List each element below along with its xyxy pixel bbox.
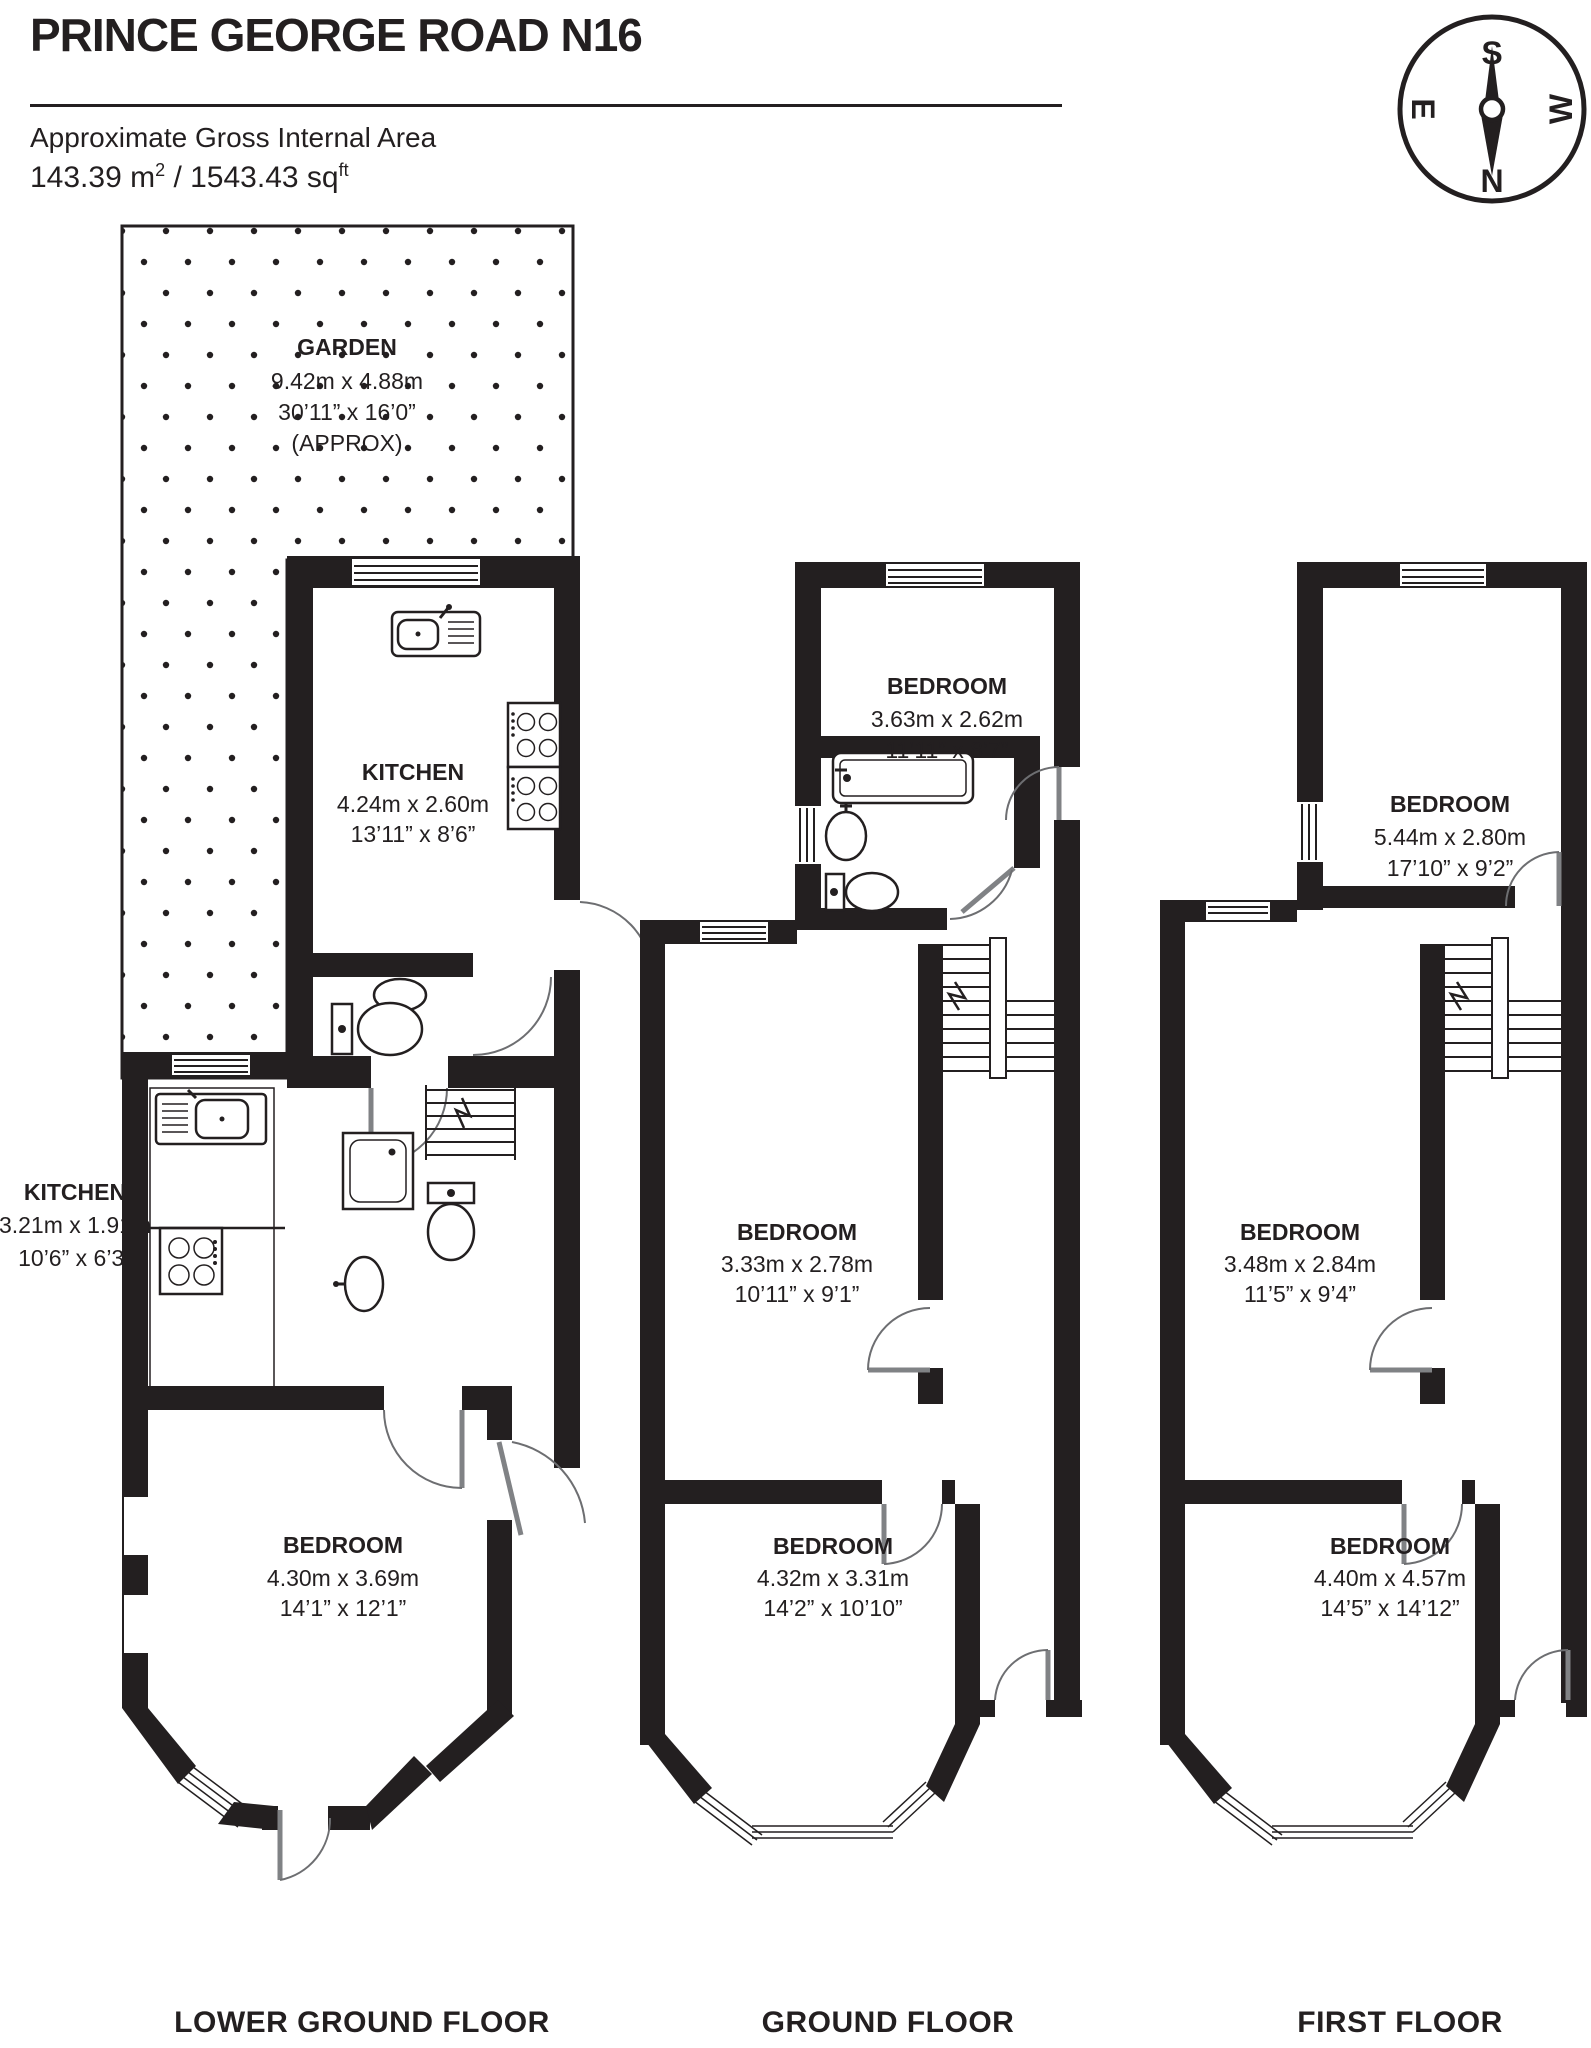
room-metric: 3.63m x 2.62m bbox=[871, 706, 1023, 732]
caption-lower-ground-floor: LOWER GROUND FLOOR bbox=[162, 2006, 562, 2040]
area-imperial: 1543.43 sq bbox=[190, 161, 338, 194]
room-name: BEDROOM bbox=[1390, 791, 1510, 817]
left-window bbox=[700, 922, 768, 942]
garden-name: GARDEN bbox=[297, 334, 397, 360]
gross-internal-area: 143.39 m2 / 1543.43 sqft bbox=[30, 160, 349, 195]
left-window bbox=[1206, 902, 1270, 920]
area-metric: 143.39 m bbox=[30, 161, 155, 194]
floorplan-ground: BEDROOM 3.63m x 2.62m 11’11” x 8’7” BEDR… bbox=[630, 540, 1110, 2010]
bay-window bbox=[122, 1700, 514, 1830]
wc2-toilet bbox=[428, 1183, 474, 1260]
kitchen-hob bbox=[508, 703, 560, 829]
wc2-basin bbox=[333, 1257, 383, 1311]
room-metric: 5.44m x 2.80m bbox=[1374, 824, 1526, 850]
compass-west: W bbox=[1543, 93, 1579, 124]
entrance-door bbox=[995, 1650, 1048, 1700]
middle-bedroom-door bbox=[1370, 1308, 1432, 1370]
bathroom-window bbox=[795, 806, 821, 864]
top-window bbox=[1400, 564, 1486, 586]
toilet bbox=[826, 873, 898, 911]
garden-note: (APPROX) bbox=[291, 430, 402, 456]
kitchen-window bbox=[352, 559, 480, 585]
front-wall-under-garden bbox=[122, 1052, 287, 1078]
bedroom-bottom-label: BEDROOM 4.40m x 4.57m 14’5” x 14’12” bbox=[1314, 1533, 1466, 1621]
room-metric: 4.40m x 4.57m bbox=[1314, 1565, 1466, 1591]
bedroom-imperial: 14’1” x 12’1” bbox=[280, 1595, 407, 1621]
room-imperial: 11’11” x 8’7” bbox=[885, 737, 1008, 763]
room-imperial: 11’5” x 9’4” bbox=[1244, 1281, 1356, 1307]
room-name: BEDROOM bbox=[737, 1219, 857, 1245]
garden-imperial: 30’11” x 16’0” bbox=[278, 399, 416, 425]
room-metric: 3.48m x 2.84m bbox=[1224, 1251, 1376, 1277]
kitchen-metric: 4.24m x 2.60m bbox=[337, 791, 489, 817]
area-separator: / bbox=[165, 161, 190, 194]
caption-ground-floor: GROUND FLOOR bbox=[688, 2006, 1088, 2040]
bedroom-name: BEDROOM bbox=[283, 1532, 403, 1558]
compass-rose: S N E W bbox=[1392, 6, 1591, 206]
wc-walls bbox=[313, 953, 473, 977]
small-kitchen-name: KITCHEN bbox=[24, 1179, 126, 1205]
floorplan-lower-ground: GARDEN 9.42m x 4.88m 30’11” x 16’0” (APP… bbox=[0, 220, 660, 2010]
room-name: BEDROOM bbox=[1240, 1219, 1360, 1245]
bedroom-metric: 4.30m x 3.69m bbox=[267, 1565, 419, 1591]
bedroom-top-label: BEDROOM 5.44m x 2.80m 17’10” x 9’2” bbox=[1374, 791, 1526, 881]
bedroom-middle-label: BEDROOM 3.48m x 2.84m 11’5” x 9’4” bbox=[1224, 1219, 1376, 1307]
bedroom-top-label: BEDROOM 3.63m x 2.62m 11’11” x 8’7” bbox=[871, 673, 1023, 763]
kitchen-label: KITCHEN 4.24m x 2.60m 13’11” x 8’6” bbox=[337, 759, 489, 847]
room-metric: 4.32m x 3.31m bbox=[757, 1565, 909, 1591]
compass-east: E bbox=[1405, 98, 1441, 119]
area-imperial-sup: ft bbox=[339, 160, 349, 180]
top-window bbox=[886, 564, 984, 586]
subtitle: Approximate Gross Internal Area bbox=[30, 122, 436, 154]
wc-toilet bbox=[332, 1003, 422, 1055]
wc-door-arc bbox=[473, 977, 551, 1055]
basin bbox=[826, 804, 866, 860]
kitchen-imperial: 13’11” x 8’6” bbox=[351, 821, 476, 847]
bedroom-bottom-label: BEDROOM 4.32m x 3.31m 14’2” x 10’10” bbox=[757, 1533, 909, 1621]
kitchen-sink bbox=[392, 604, 480, 656]
stairs bbox=[1437, 938, 1582, 1078]
room-imperial: 14’5” x 14’12” bbox=[1320, 1595, 1459, 1621]
room-imperial: 14’2” x 10’10” bbox=[763, 1595, 902, 1621]
entrance-door bbox=[1515, 1650, 1568, 1700]
small-kitchen-hob bbox=[160, 1228, 222, 1294]
bay-window bbox=[640, 1724, 980, 1845]
shower bbox=[343, 1133, 413, 1209]
room-name: BEDROOM bbox=[887, 673, 1007, 699]
front-door bbox=[280, 1810, 330, 1880]
room-imperial: 17’10” x 9’2” bbox=[1387, 855, 1514, 881]
garden-metric: 9.42m x 4.88m bbox=[271, 368, 423, 394]
floorplan-first: BEDROOM 5.44m x 2.80m 17’10” x 9’2” BEDR… bbox=[1140, 540, 1591, 2010]
caption-first-floor: FIRST FLOOR bbox=[1200, 2006, 1591, 2040]
room-metric: 3.33m x 2.78m bbox=[721, 1251, 873, 1277]
area-metric-sup: 2 bbox=[155, 160, 165, 180]
title-divider bbox=[30, 104, 1062, 107]
middle-bedroom-door bbox=[868, 1308, 930, 1370]
kitchen-name: KITCHEN bbox=[362, 759, 464, 785]
left-window-top bbox=[1297, 802, 1323, 862]
room-imperial: 10’11” x 9’1” bbox=[735, 1281, 860, 1307]
room-name: BEDROOM bbox=[1330, 1533, 1450, 1559]
bay-window bbox=[1160, 1724, 1500, 1845]
bedroom-middle-label: BEDROOM 3.33m x 2.78m 10’11” x 9’1” bbox=[721, 1219, 873, 1307]
room-name: BEDROOM bbox=[773, 1533, 893, 1559]
bathroom-door bbox=[950, 868, 1014, 919]
bedroom-door bbox=[384, 1410, 462, 1488]
bedroom-label: BEDROOM 4.30m x 3.69m 14’1” x 12’1” bbox=[267, 1532, 419, 1621]
page-title: PRINCE GEORGE ROAD N16 bbox=[30, 8, 642, 62]
small-kitchen-imperial: 10’6” x 6’3” bbox=[18, 1245, 132, 1271]
